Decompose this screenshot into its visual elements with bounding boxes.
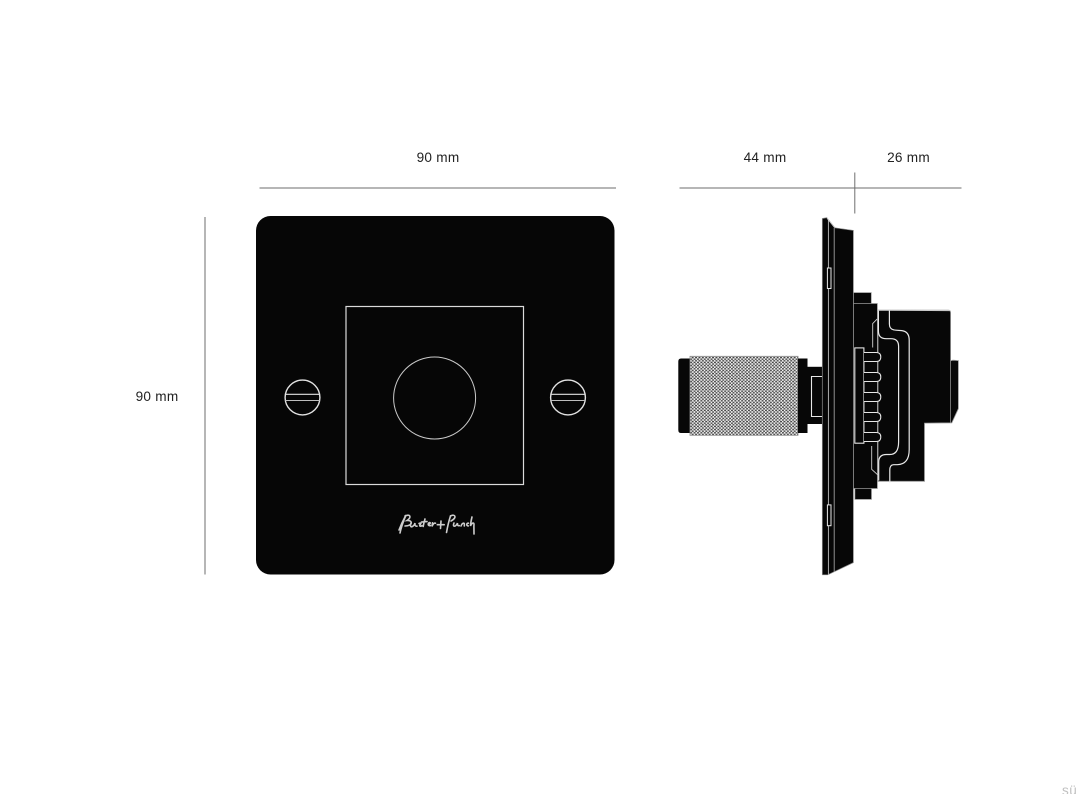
svg-text:sü: sü	[1062, 783, 1077, 794]
svg-text:90 mm: 90 mm	[417, 150, 460, 165]
svg-text:26 mm: 26 mm	[887, 150, 930, 165]
svg-text:44 mm: 44 mm	[744, 150, 787, 165]
svg-text:90 mm: 90 mm	[136, 389, 179, 404]
